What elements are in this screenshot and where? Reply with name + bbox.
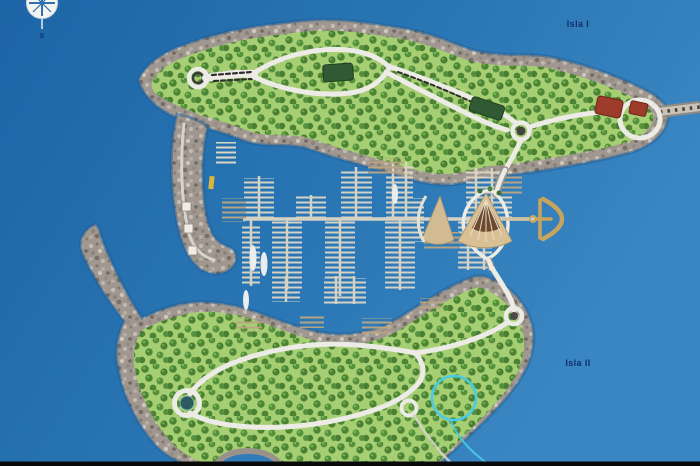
boat (261, 252, 268, 276)
bridge-deck (658, 107, 700, 112)
east-access-bridge (658, 107, 700, 112)
label-isla-2: Isla II (565, 358, 590, 368)
tree (488, 187, 493, 192)
dock-slip-cluster (420, 298, 442, 312)
pond (180, 396, 194, 410)
breakwater-building (184, 224, 193, 233)
tree (478, 189, 483, 194)
roundabout-center (517, 127, 526, 136)
dock-slip-cluster (236, 318, 262, 332)
compass-south-label: S (40, 33, 45, 40)
label-isla-1: Isla I (567, 19, 589, 29)
breakwater-building (182, 202, 191, 211)
dock-slip-cluster (324, 278, 366, 304)
building-green (322, 63, 353, 82)
marina-master-plan: S Isla I Isla II (0, 0, 700, 466)
tree (497, 191, 502, 196)
breakwater-building (188, 246, 197, 255)
roundabout-center (510, 312, 518, 320)
dock-slip-cluster (222, 198, 246, 222)
bottom-edge-bar (0, 462, 700, 466)
boat (250, 245, 257, 271)
dock-slip-cluster (362, 318, 392, 334)
boat (243, 290, 249, 310)
compass-hub (40, 1, 44, 5)
site-plan-canvas: S Isla I Isla II (0, 0, 700, 466)
dock-slip-cluster (216, 142, 236, 164)
dock-slip-cluster (368, 158, 404, 176)
building-red (629, 100, 648, 116)
boat (392, 184, 398, 204)
dock-slip-cluster (300, 316, 324, 328)
